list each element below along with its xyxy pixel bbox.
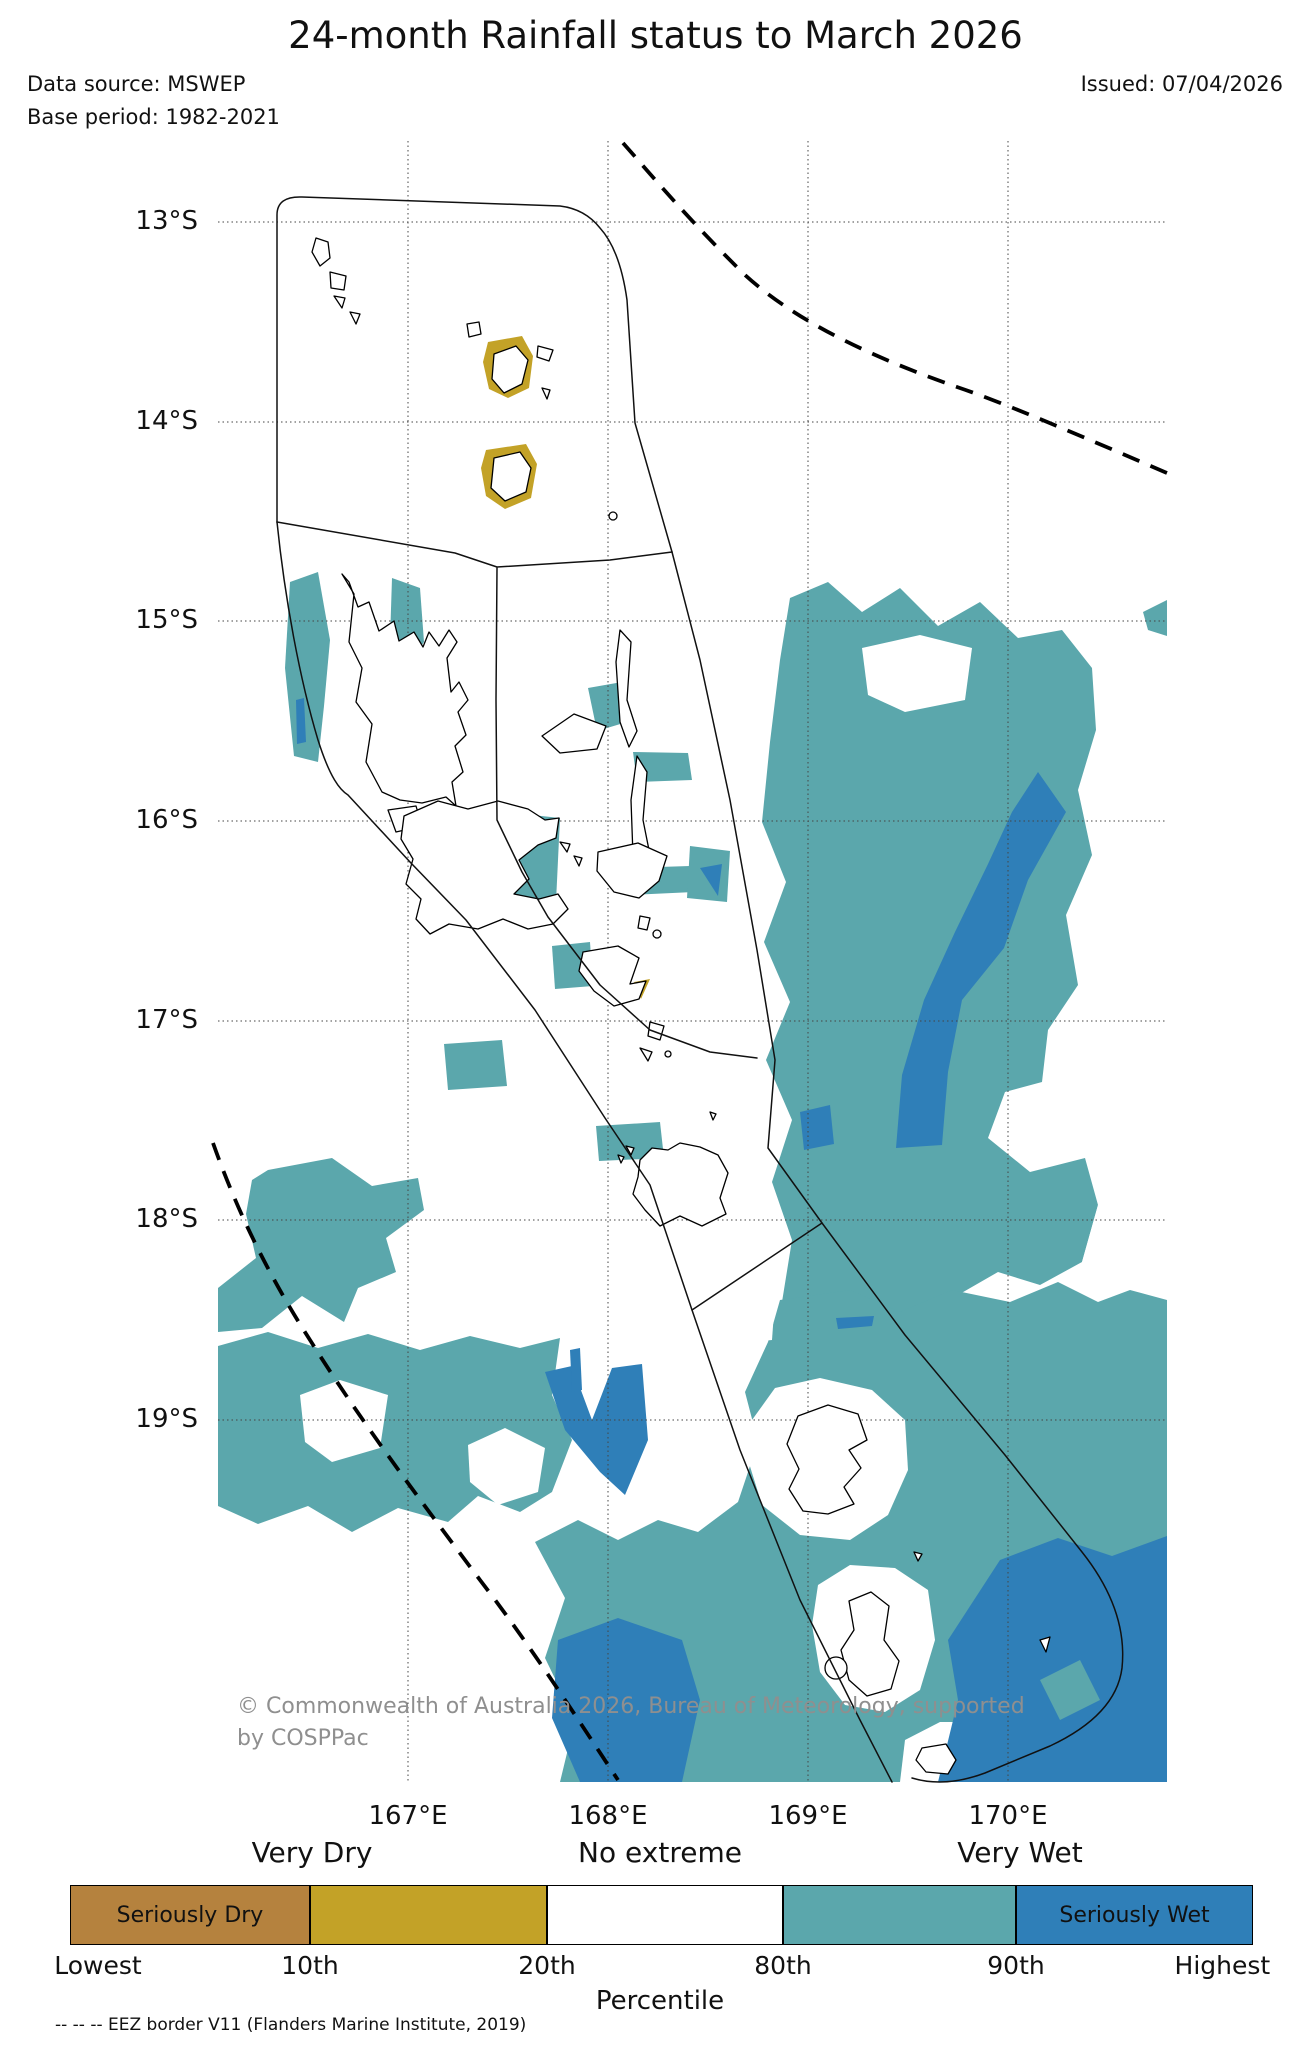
legend-swatch-very-dry bbox=[310, 1885, 547, 1945]
legend-swatch-seriously-dry: Seriously Dry bbox=[70, 1885, 310, 1945]
lat-label-17s: 17°S bbox=[58, 1005, 198, 1035]
eez-border-note: -- -- -- EEZ border V11 (Flanders Marine… bbox=[55, 2015, 526, 2035]
lat-label-13s: 13°S bbox=[58, 206, 198, 236]
legend-swatch-no-extreme bbox=[547, 1885, 783, 1945]
legend-swatch-seriously-wet: Seriously Wet bbox=[1016, 1885, 1253, 1945]
lat-label-19s: 19°S bbox=[58, 1404, 198, 1434]
copyright-line1: © Commonwealth of Australia 2026, Bureau… bbox=[237, 1694, 1025, 1719]
percentile-axis-title: Percentile bbox=[596, 1986, 724, 2016]
lon-label-169e: 169°E bbox=[768, 1801, 847, 1831]
seriously-dry-label: Seriously Dry bbox=[117, 1903, 264, 1928]
percentile-label-80th: 80th bbox=[754, 1951, 811, 1980]
lat-label-16s: 16°S bbox=[58, 805, 198, 835]
lat-label-14s: 14°S bbox=[58, 406, 198, 436]
base-period-label: Base period: 1982-2021 bbox=[27, 105, 280, 129]
copyright-line2: by COSPPac bbox=[237, 1726, 369, 1751]
lon-label-168e: 168°E bbox=[568, 1801, 647, 1831]
seriously-wet-label: Seriously Wet bbox=[1059, 1903, 1209, 1928]
lat-label-15s: 15°S bbox=[58, 605, 198, 635]
rainfall-status-page: { "header": { "title": "24-month Rainfal… bbox=[0, 0, 1311, 2046]
lon-label-167e: 167°E bbox=[368, 1801, 447, 1831]
legend-category-no-extreme: No extreme bbox=[578, 1836, 742, 1869]
legend-swatch-very-wet bbox=[783, 1885, 1016, 1945]
percentile-label-highest: Highest bbox=[1175, 1951, 1271, 1980]
percentile-label-lowest: Lowest bbox=[54, 1951, 141, 1980]
percentile-label-10th: 10th bbox=[281, 1951, 338, 1980]
page-title: 24-month Rainfall status to March 2026 bbox=[0, 14, 1311, 57]
legend-category-very-wet: Very Wet bbox=[957, 1836, 1082, 1869]
legend-color-bar: Seriously Dry Seriously Wet bbox=[70, 1885, 1253, 1945]
lon-label-170e: 170°E bbox=[968, 1801, 1047, 1831]
data-source-label: Data source: MSWEP bbox=[27, 72, 245, 96]
percentile-label-20th: 20th bbox=[518, 1951, 575, 1980]
lat-label-18s: 18°S bbox=[58, 1204, 198, 1234]
percentile-label-90th: 90th bbox=[987, 1951, 1044, 1980]
issued-label: Issued: 07/04/2026 bbox=[1081, 72, 1283, 96]
legend-category-very-dry: Very Dry bbox=[252, 1836, 373, 1869]
